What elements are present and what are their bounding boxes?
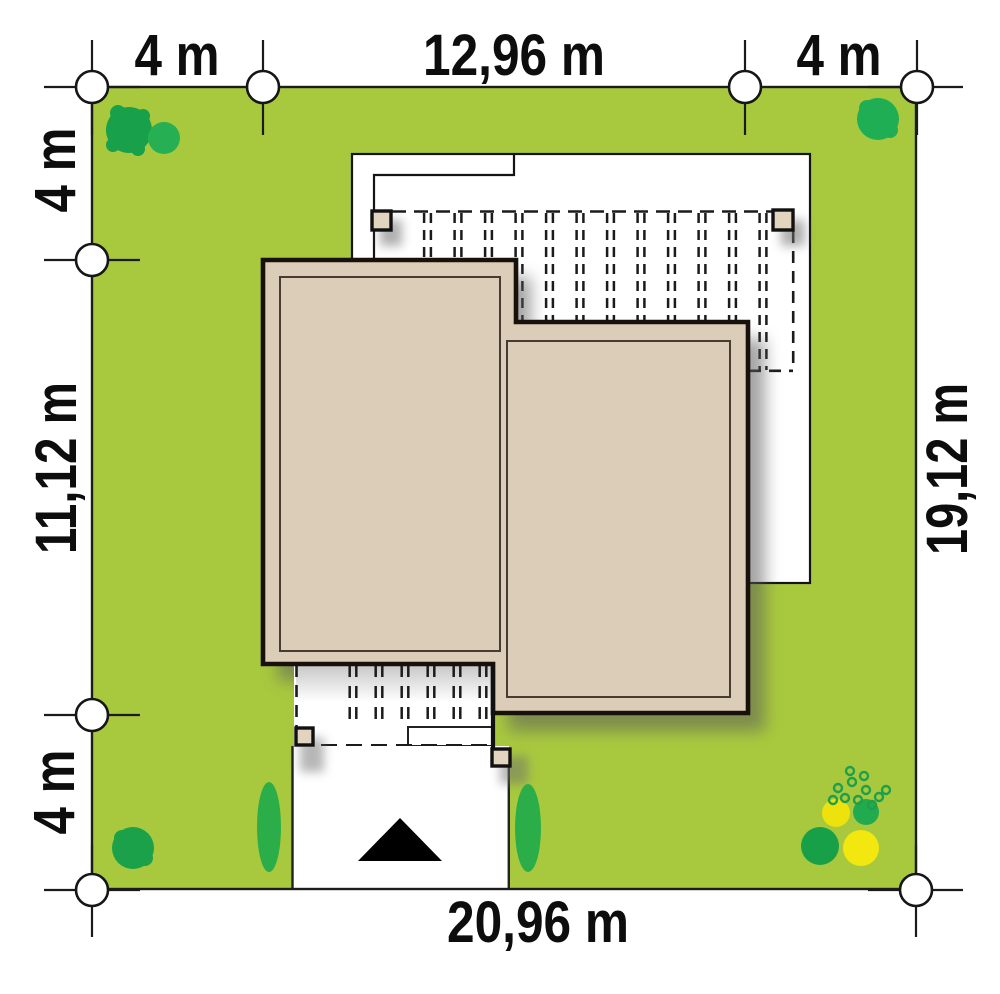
svg-text:20,96 m: 20,96 m [447,890,629,955]
svg-text:4 m: 4 m [23,128,88,213]
svg-text:11,12 m: 11,12 m [24,382,89,554]
svg-text:12,96 m: 12,96 m [423,23,605,88]
svg-text:4 m: 4 m [797,23,882,88]
svg-text:4 m: 4 m [135,23,220,88]
svg-text:19,12 m: 19,12 m [915,383,980,555]
svg-text:4 m: 4 m [22,750,87,835]
